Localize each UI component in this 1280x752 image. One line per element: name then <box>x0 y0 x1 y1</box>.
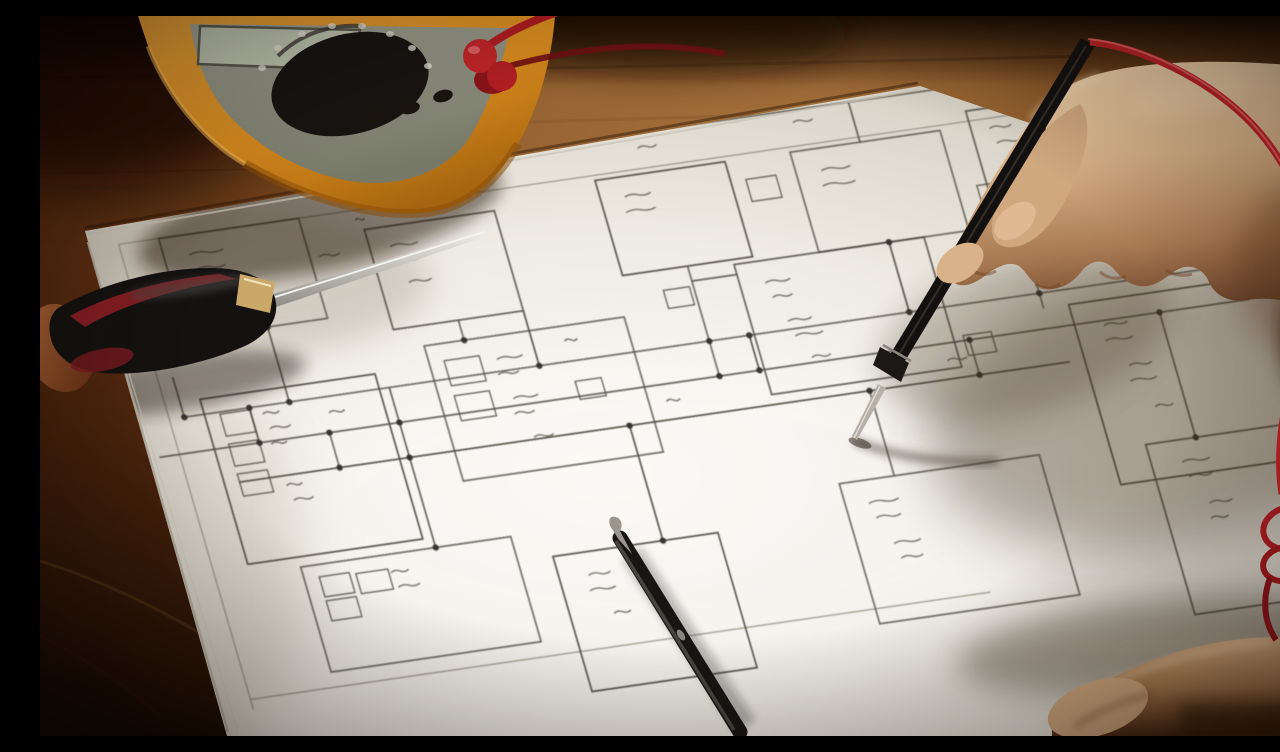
workbench-photo: Close-up photograph of an electronics wo… <box>40 16 1280 736</box>
photo-canvas <box>40 16 1280 736</box>
vignette-overlay <box>40 16 1280 736</box>
